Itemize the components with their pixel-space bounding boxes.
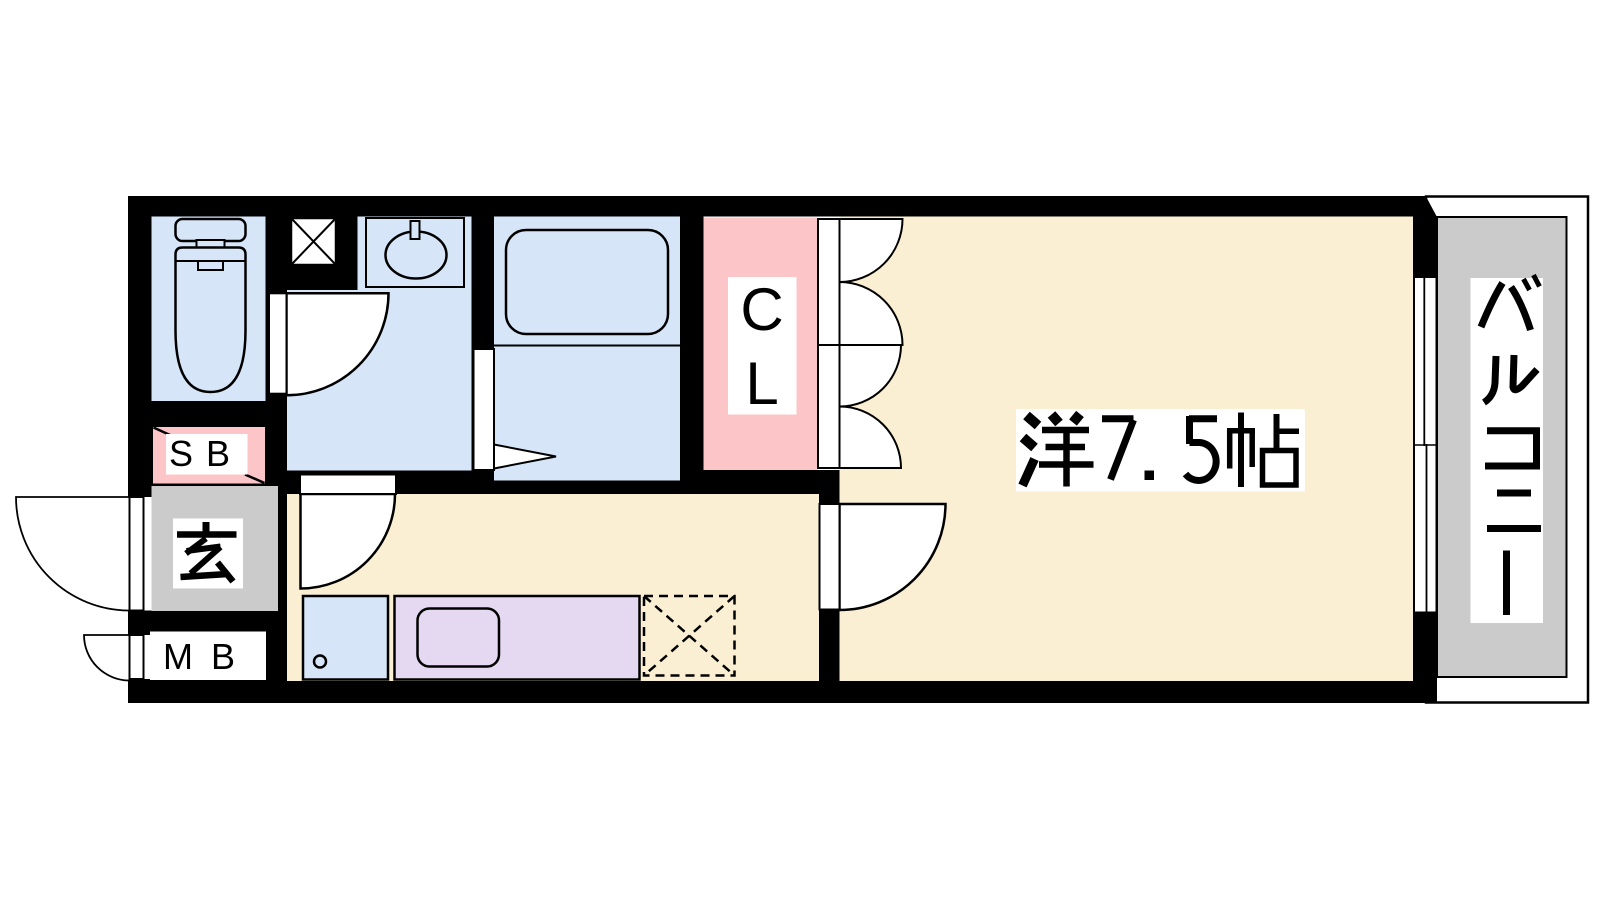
svg-text:MB: MB [163,636,253,677]
svg-text:L: L [745,350,778,417]
svg-text:SB: SB [169,433,243,474]
svg-text:C: C [740,276,783,343]
